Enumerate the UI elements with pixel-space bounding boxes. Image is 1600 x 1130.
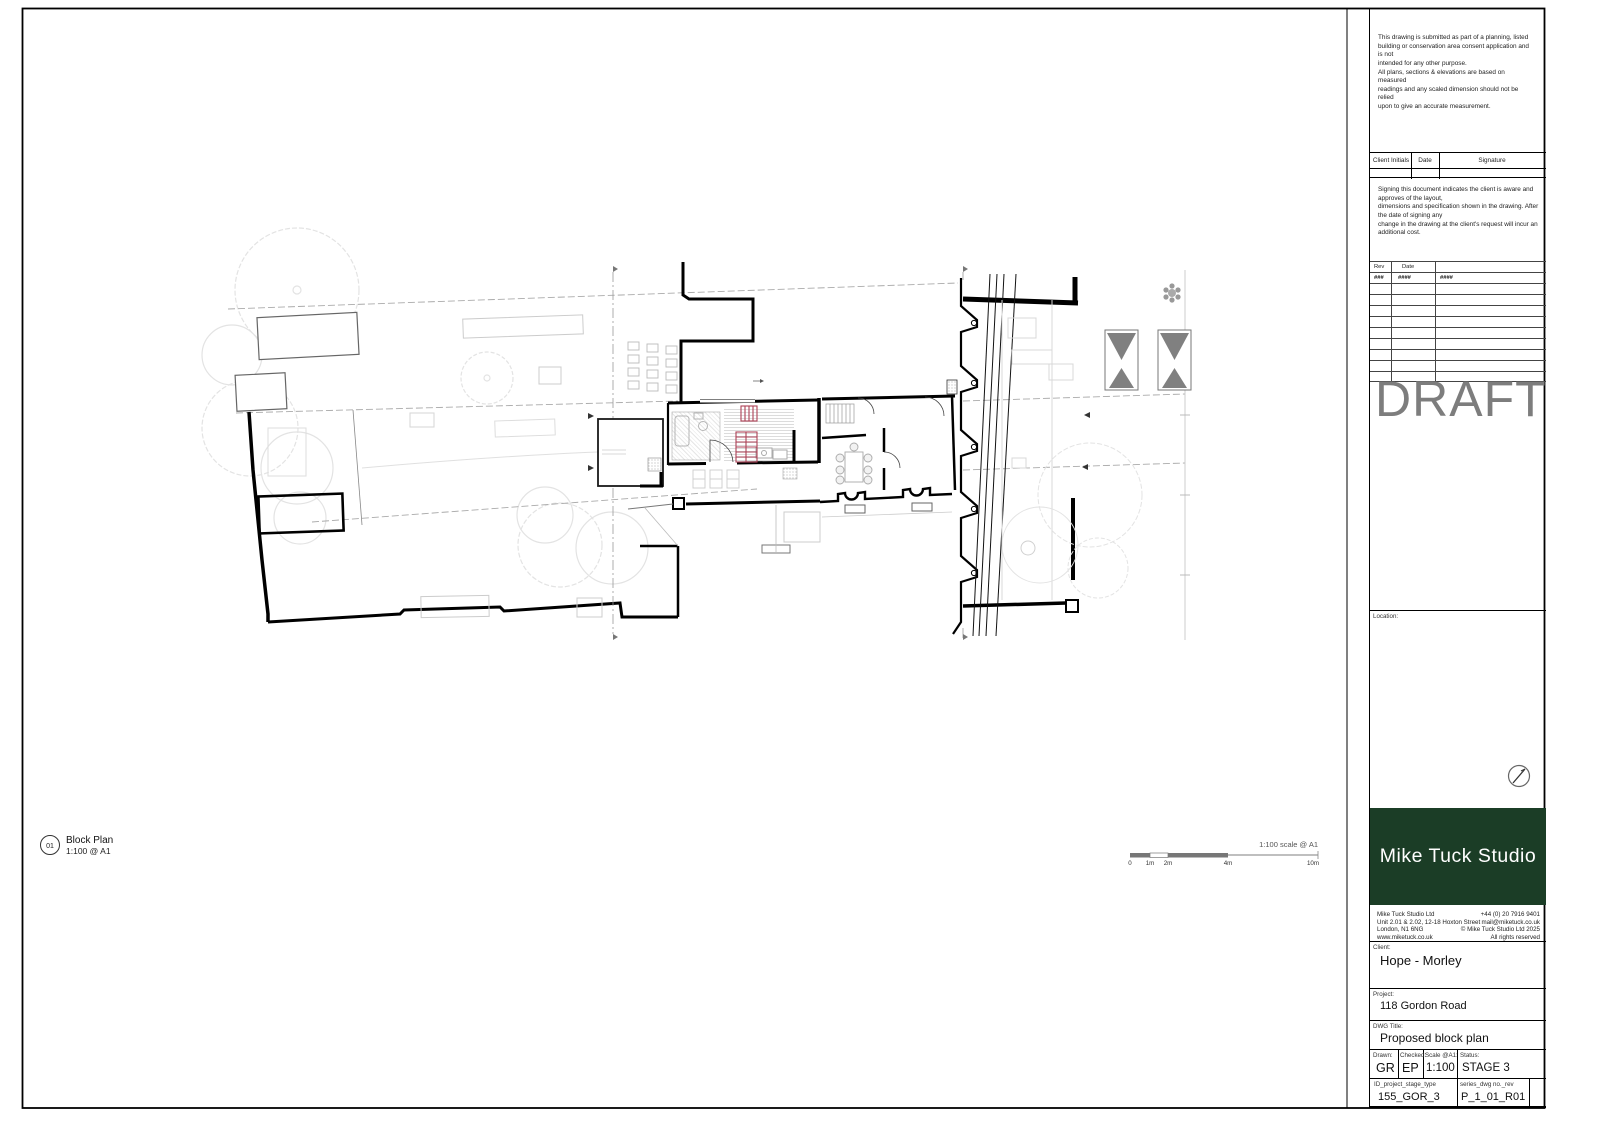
flower-symbol — [1163, 283, 1180, 302]
block-plan-drawing: 01 Block Plan 1:100 @ A1 1:100 scale @ A… — [0, 0, 1600, 1130]
patio-furniture — [628, 342, 677, 393]
dwg-title-section: DWG Title: Proposed block plan — [1370, 1020, 1546, 1049]
garden-structures — [235, 312, 602, 617]
studio-logo: Mike Tuck Studio — [1370, 808, 1546, 905]
street-diagonal-lines — [973, 274, 1016, 636]
scale-bar-note: 1:100 scale @ A1 — [1259, 840, 1318, 849]
drawn-value: GR — [1376, 1061, 1395, 1075]
meta-section: Drawn: Checked: Scale @A1: Status: GR EP… — [1370, 1049, 1546, 1078]
svg-text:10m: 10m — [1307, 860, 1319, 867]
sign-col-date: Date — [1411, 157, 1439, 164]
project-id-value: 155_GOR_3 — [1378, 1091, 1440, 1103]
caption-scale: 1:100 @ A1 — [66, 846, 111, 856]
sign-table-divider — [1439, 153, 1440, 179]
rev-row — [1370, 338, 1546, 349]
sign-table-divider — [1411, 153, 1412, 179]
title-block: This drawing is submitted as part of a p… — [1369, 8, 1545, 1108]
rev-header-row: Rev Date — [1370, 261, 1546, 272]
location-label: Location: — [1373, 613, 1398, 620]
svg-text:1m: 1m — [1146, 860, 1155, 867]
house-118-rear-extension — [598, 419, 663, 486]
revision-table: Rev Date ### #### #### — [1370, 261, 1546, 382]
series-id-value: P_1_01_R01 — [1461, 1091, 1525, 1103]
dwg-title: Proposed block plan — [1380, 1031, 1489, 1045]
rev-row — [1370, 294, 1546, 305]
location-section: Location: — [1370, 610, 1546, 760]
status-value: STAGE 3 — [1462, 1062, 1510, 1074]
svg-text:0: 0 — [1128, 860, 1132, 867]
drawing-caption: 01 Block Plan 1:100 @ A1 — [41, 835, 114, 856]
scale-bar: 1:100 scale @ A1 0 1m 2m 4m 10m — [1128, 840, 1319, 867]
studio-address-block: Mike Tuck Studio Ltd Unit 2.01 & 2.02, 1… — [1370, 911, 1546, 941]
rev-row — [1370, 316, 1546, 327]
sheet-border — [23, 9, 1545, 1109]
client-section: Client: Hope - Morley — [1370, 941, 1546, 988]
north-compass-icon — [1506, 763, 1532, 789]
project-name: 118 Gordon Road — [1380, 1000, 1467, 1012]
svg-text:2m: 2m — [1164, 860, 1173, 867]
sign-col-client-initials: Client Initials — [1372, 157, 1410, 164]
sign-col-signature: Signature — [1439, 157, 1545, 164]
client-name: Hope - Morley — [1380, 953, 1462, 968]
scale-value: 1:100 — [1426, 1062, 1455, 1074]
house-neighbour-plan — [820, 396, 955, 517]
studio-contact: +44 (0) 20 7916 9401 mail@miketuck.co.uk… — [1461, 911, 1540, 941]
project-section: Project: 118 Gordon Road — [1370, 988, 1546, 1020]
checked-value: EP — [1402, 1061, 1419, 1075]
svg-text:4m: 4m — [1224, 860, 1233, 867]
rev-row — [1370, 327, 1546, 338]
draft-watermark: DRAFT — [1375, 374, 1547, 424]
signing-note: Signing this document indicates the clie… — [1378, 186, 1542, 238]
rev-row — [1370, 349, 1546, 360]
rev-row — [1370, 283, 1546, 294]
rev-row — [1370, 305, 1546, 316]
caption-number: 01 — [46, 843, 54, 850]
id-section: ID_project_stage_type series_dwg no._rev… — [1370, 1078, 1546, 1108]
caption-title: Block Plan — [66, 835, 113, 846]
rev-row: ### #### #### — [1370, 272, 1546, 283]
gate-symbols — [1105, 330, 1191, 390]
street-context-light — [1002, 270, 1190, 640]
disclaimer-note: This drawing is submitted as part of a p… — [1378, 34, 1530, 112]
studio-logo-text: Mike Tuck Studio — [1380, 845, 1536, 868]
client-signature-table: Client Initials Date Signature — [1370, 152, 1546, 178]
drawing-sheet: { "titleblock": { "disclaimer": "This dr… — [0, 0, 1600, 1130]
rev-row — [1370, 360, 1546, 371]
